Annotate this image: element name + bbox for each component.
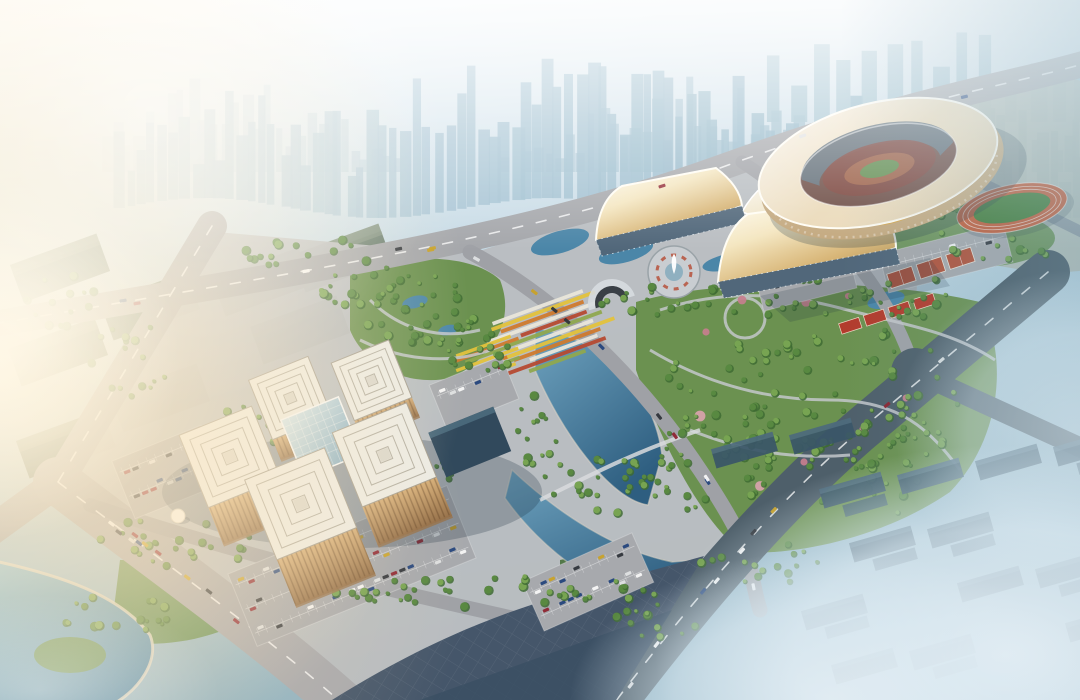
aerial-rendering	[0, 0, 1080, 700]
scene-canvas	[0, 0, 1080, 700]
